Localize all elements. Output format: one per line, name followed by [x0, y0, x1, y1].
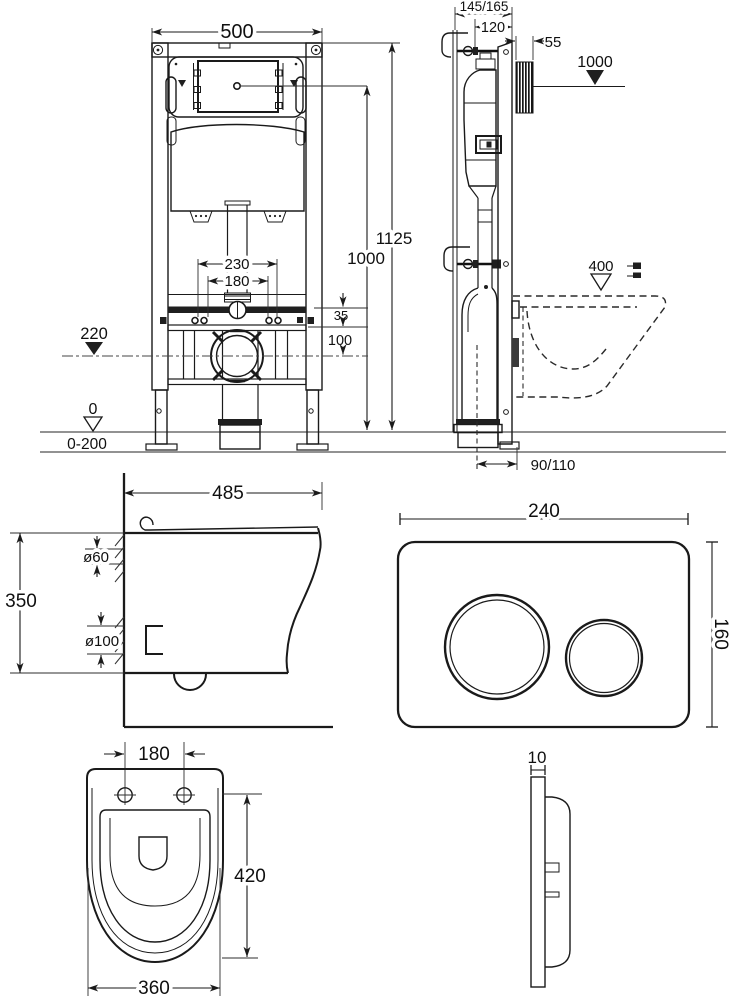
dim-55: 55	[545, 34, 562, 51]
dim-240: 240	[528, 501, 560, 522]
flush-plate-recess	[516, 62, 533, 113]
vent-mark-left-icon	[178, 80, 186, 87]
dim-100: 100	[328, 333, 352, 349]
frame-column-side	[498, 42, 512, 444]
frame-front-view: 500 1125 1000 230 180 35 100 220 0	[62, 21, 412, 453]
dim-485: 485	[212, 483, 244, 504]
dim-220: 220	[80, 325, 108, 343]
dim-420: 420	[234, 866, 266, 887]
level-mark-400-icon	[591, 274, 611, 290]
dim-180-frame: 180	[224, 273, 249, 290]
bowl-profile	[124, 517, 321, 690]
dim-d60: ø60	[83, 549, 109, 566]
dim-230: 230	[224, 256, 249, 273]
small-flush-button	[566, 620, 642, 696]
actuator-center-point	[234, 83, 240, 89]
dim-1125: 1125	[376, 229, 413, 248]
dim-10: 10	[528, 748, 547, 767]
bowl-side-dimensions: 485 350 ø60 ø100	[5, 482, 322, 673]
level-mark-0-icon	[84, 417, 102, 431]
level-mark-1000-icon	[586, 70, 604, 85]
dim-1000-front: 1000	[347, 249, 385, 268]
cistern-side	[464, 53, 501, 289]
dim-35: 35	[334, 308, 348, 323]
dim-1000-side: 1000	[577, 54, 613, 71]
plate-housing-side	[545, 797, 570, 967]
plate-panel-side	[531, 777, 545, 987]
frame-side-view: 145/165 120 55 1000 400 90/110	[442, 0, 666, 474]
dim-0-200: 0-200	[67, 436, 107, 453]
big-flush-button	[445, 595, 549, 699]
technical-drawing-canvas: 500 1125 1000 230 180 35 100 220 0	[0, 0, 730, 1000]
dim-90-110: 90/110	[531, 457, 576, 474]
dim-500: 500	[220, 21, 253, 43]
dim-0: 0	[89, 401, 98, 418]
flush-plate-front-view: 240 160	[398, 501, 730, 727]
bowl-top-outline	[87, 769, 223, 962]
frame-top-bar	[152, 43, 322, 57]
dim-d100: ø100	[85, 633, 119, 650]
flush-plate-side-view: 10	[528, 748, 570, 987]
frame-right-post	[306, 43, 322, 390]
floor-lines	[40, 432, 726, 452]
dim-120: 120	[481, 20, 505, 36]
dim-160: 160	[710, 618, 730, 650]
dim-360: 360	[138, 978, 170, 999]
bowl-outline-dashed	[513, 296, 666, 398]
access-panel	[166, 57, 367, 145]
level-mark-220-icon	[85, 342, 103, 355]
frame-side-dimensions: 145/165 120 55 1000 400 90/110	[455, 0, 641, 474]
dim-400: 400	[588, 258, 613, 275]
drawing-svg: 500 1125 1000 230 180 35 100 220 0	[0, 0, 730, 1000]
dim-145-165: 145/165	[460, 0, 509, 14]
lower-frame	[160, 293, 314, 449]
drain-elbow	[454, 288, 502, 448]
flush-plate	[398, 542, 689, 727]
bowl-side-view: 485 350 ø60 ø100	[5, 473, 333, 727]
dim-350: 350	[5, 591, 37, 612]
dim-180-holes: 180	[138, 744, 170, 765]
bowl-top-view: 180 420 360	[87, 742, 266, 999]
